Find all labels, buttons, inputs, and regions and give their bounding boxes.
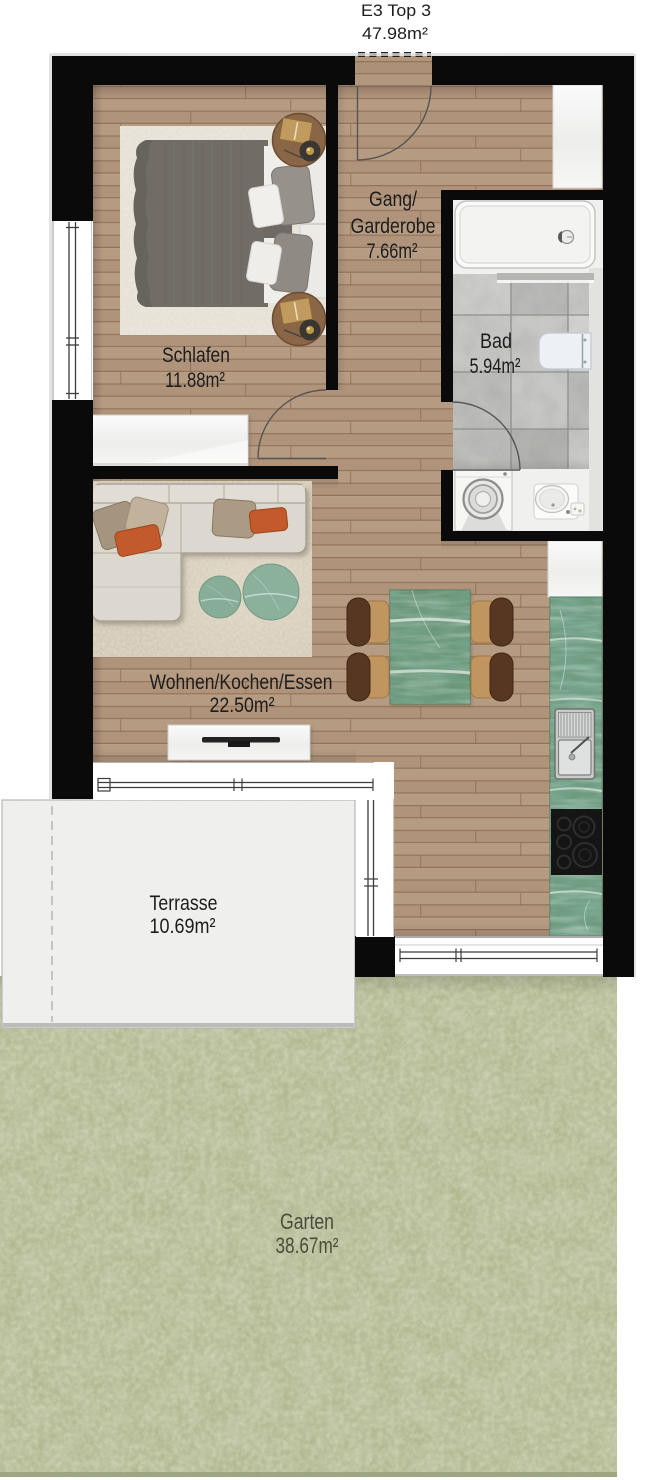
svg-text:5.94m²: 5.94m² (470, 355, 521, 378)
svg-text:E3 Top 3: E3 Top 3 (361, 1, 431, 20)
svg-text:Bad: Bad (480, 330, 512, 353)
svg-text:47.98m²: 47.98m² (362, 24, 428, 43)
svg-text:Gang/: Gang/ (369, 188, 417, 211)
svg-text:Schlafen: Schlafen (162, 344, 230, 367)
svg-text:Garderobe: Garderobe (351, 215, 436, 238)
svg-text:22.50m²: 22.50m² (210, 694, 275, 717)
svg-text:7.66m²: 7.66m² (367, 240, 418, 263)
svg-text:38.67m²: 38.67m² (276, 1233, 339, 1258)
svg-text:10.69m²: 10.69m² (150, 915, 216, 938)
svg-text:11.88m²: 11.88m² (165, 369, 225, 392)
svg-text:Terrasse: Terrasse (150, 892, 218, 915)
svg-text:Wohnen/Kochen/Essen: Wohnen/Kochen/Essen (150, 671, 333, 694)
svg-text:Garten: Garten (280, 1209, 334, 1234)
